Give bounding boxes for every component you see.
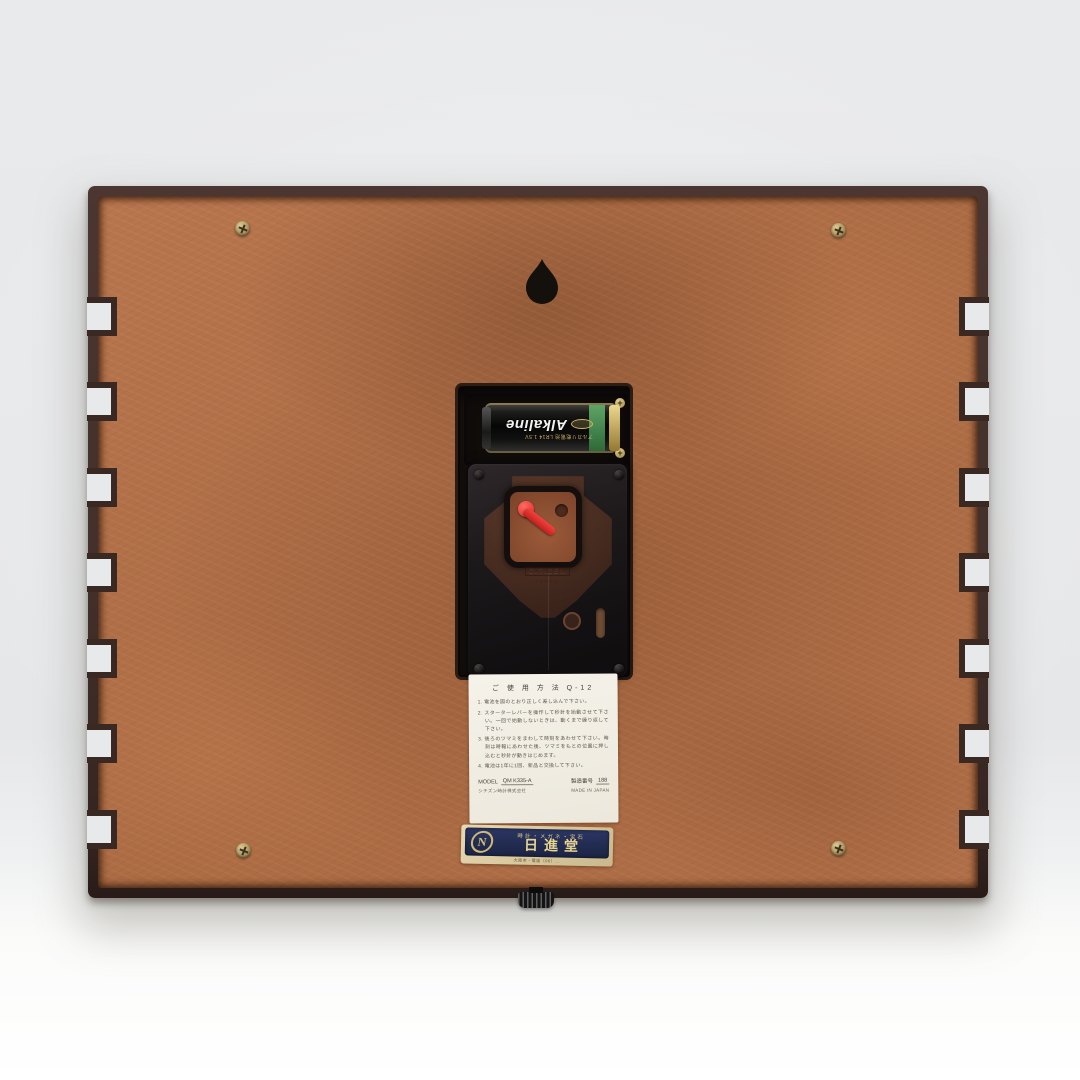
model-label: MODEL [478, 780, 498, 786]
wall-clock-back: + + アルカリ乾電池 LR14 1.5V Alkaline [88, 186, 988, 898]
movement-brand-emboss: CITIZEN JAPAN [468, 560, 627, 584]
edge-notch [87, 639, 117, 678]
model-value: QM K335-A [501, 778, 534, 785]
instruction-label: ご 使 用 方 法 Q-12 1. 電池を図のとおり正しく差し込んで下さい。 2… [468, 673, 618, 823]
instruction-item: 2. スターターレバーを操作して秒針を始動させて下さい。一回で始動しないときは、… [478, 708, 609, 733]
phillips-screw [831, 223, 846, 238]
battery-brand-text: Alkaline [505, 416, 567, 433]
edge-notch [959, 724, 989, 763]
edge-notch [87, 468, 117, 507]
phillips-screw [235, 221, 250, 236]
backboard-panel: + + アルカリ乾電池 LR14 1.5V Alkaline [98, 196, 978, 888]
maker-company-text: シチズン時計株式会社 [478, 788, 526, 794]
label-footer: シチズン時計株式会社 MADE IN JAPAN [478, 788, 609, 795]
phillips-screw [831, 841, 846, 856]
movement-screw [614, 470, 624, 480]
c-cell-battery: アルカリ乾電池 LR14 1.5V Alkaline [485, 403, 617, 453]
movement-brand-text: CITIZEN [525, 567, 571, 576]
retailer-label: N 時計・メガネ・宝石 日進堂 大阪市・電話（06）… [461, 824, 614, 866]
time-set-window [504, 486, 582, 568]
edge-notch [959, 639, 989, 678]
movement-seam-line [548, 574, 549, 670]
edge-notch [959, 468, 989, 507]
serial-value: 188 [596, 778, 609, 785]
movement-slot [596, 608, 605, 638]
edge-notch [87, 724, 117, 763]
movement-screw [474, 470, 484, 480]
edge-notch [959, 553, 989, 592]
movement-screw [474, 664, 484, 674]
instruction-item: 1. 電池を図のとおり正しく差し込んで下さい。 [478, 698, 609, 707]
battery-spec-text: アルカリ乾電池 LR14 1.5V [515, 433, 593, 440]
made-in-text: MADE IN JAPAN [571, 788, 609, 794]
movement-socket [563, 612, 581, 630]
hanging-keyhole-icon [524, 257, 560, 305]
edge-notch [87, 297, 117, 336]
battery-compartment: + + アルカリ乾電池 LR14 1.5V Alkaline [455, 383, 633, 680]
battery-label: アルカリ乾電池 LR14 1.5V Alkaline [485, 403, 617, 453]
adjustment-knob [518, 892, 554, 908]
edge-notch [87, 810, 117, 849]
edge-notch [959, 810, 989, 849]
quartz-movement: CITIZEN JAPAN [466, 462, 629, 678]
battery-maker-oval-logo [571, 420, 593, 430]
edge-notch [87, 382, 117, 421]
movement-hole [555, 504, 568, 517]
serial-label: 製造番号 [571, 777, 593, 785]
phillips-screw [236, 843, 251, 858]
battery-holder: + + アルカリ乾電池 LR14 1.5V Alkaline [464, 391, 630, 465]
instruction-item: 4. 電池は1年に1回、新品と交換して下さい。 [478, 762, 609, 771]
movement-origin-text: JAPAN [468, 579, 627, 584]
model-row: MODEL QM K335-A 製造番号 188 [478, 777, 609, 786]
studio-backdrop: + + アルカリ乾電池 LR14 1.5V Alkaline [0, 0, 1080, 1080]
time-set-lever [522, 507, 557, 537]
edge-notch [87, 553, 117, 592]
retailer-name: 日進堂 [518, 839, 584, 855]
edge-notch [959, 382, 989, 421]
retailer-logo-icon: N [469, 831, 495, 853]
edge-notch [959, 297, 989, 336]
instruction-title: ご 使 用 方 法 Q-12 [478, 683, 609, 694]
instruction-item: 3. 後ろのツマミをまわして時刻をあわせて下さい。時刻は時報にあわせた後、ツマミ… [478, 735, 609, 760]
retailer-label-plate: N 時計・メガネ・宝石 日進堂 [465, 827, 610, 858]
